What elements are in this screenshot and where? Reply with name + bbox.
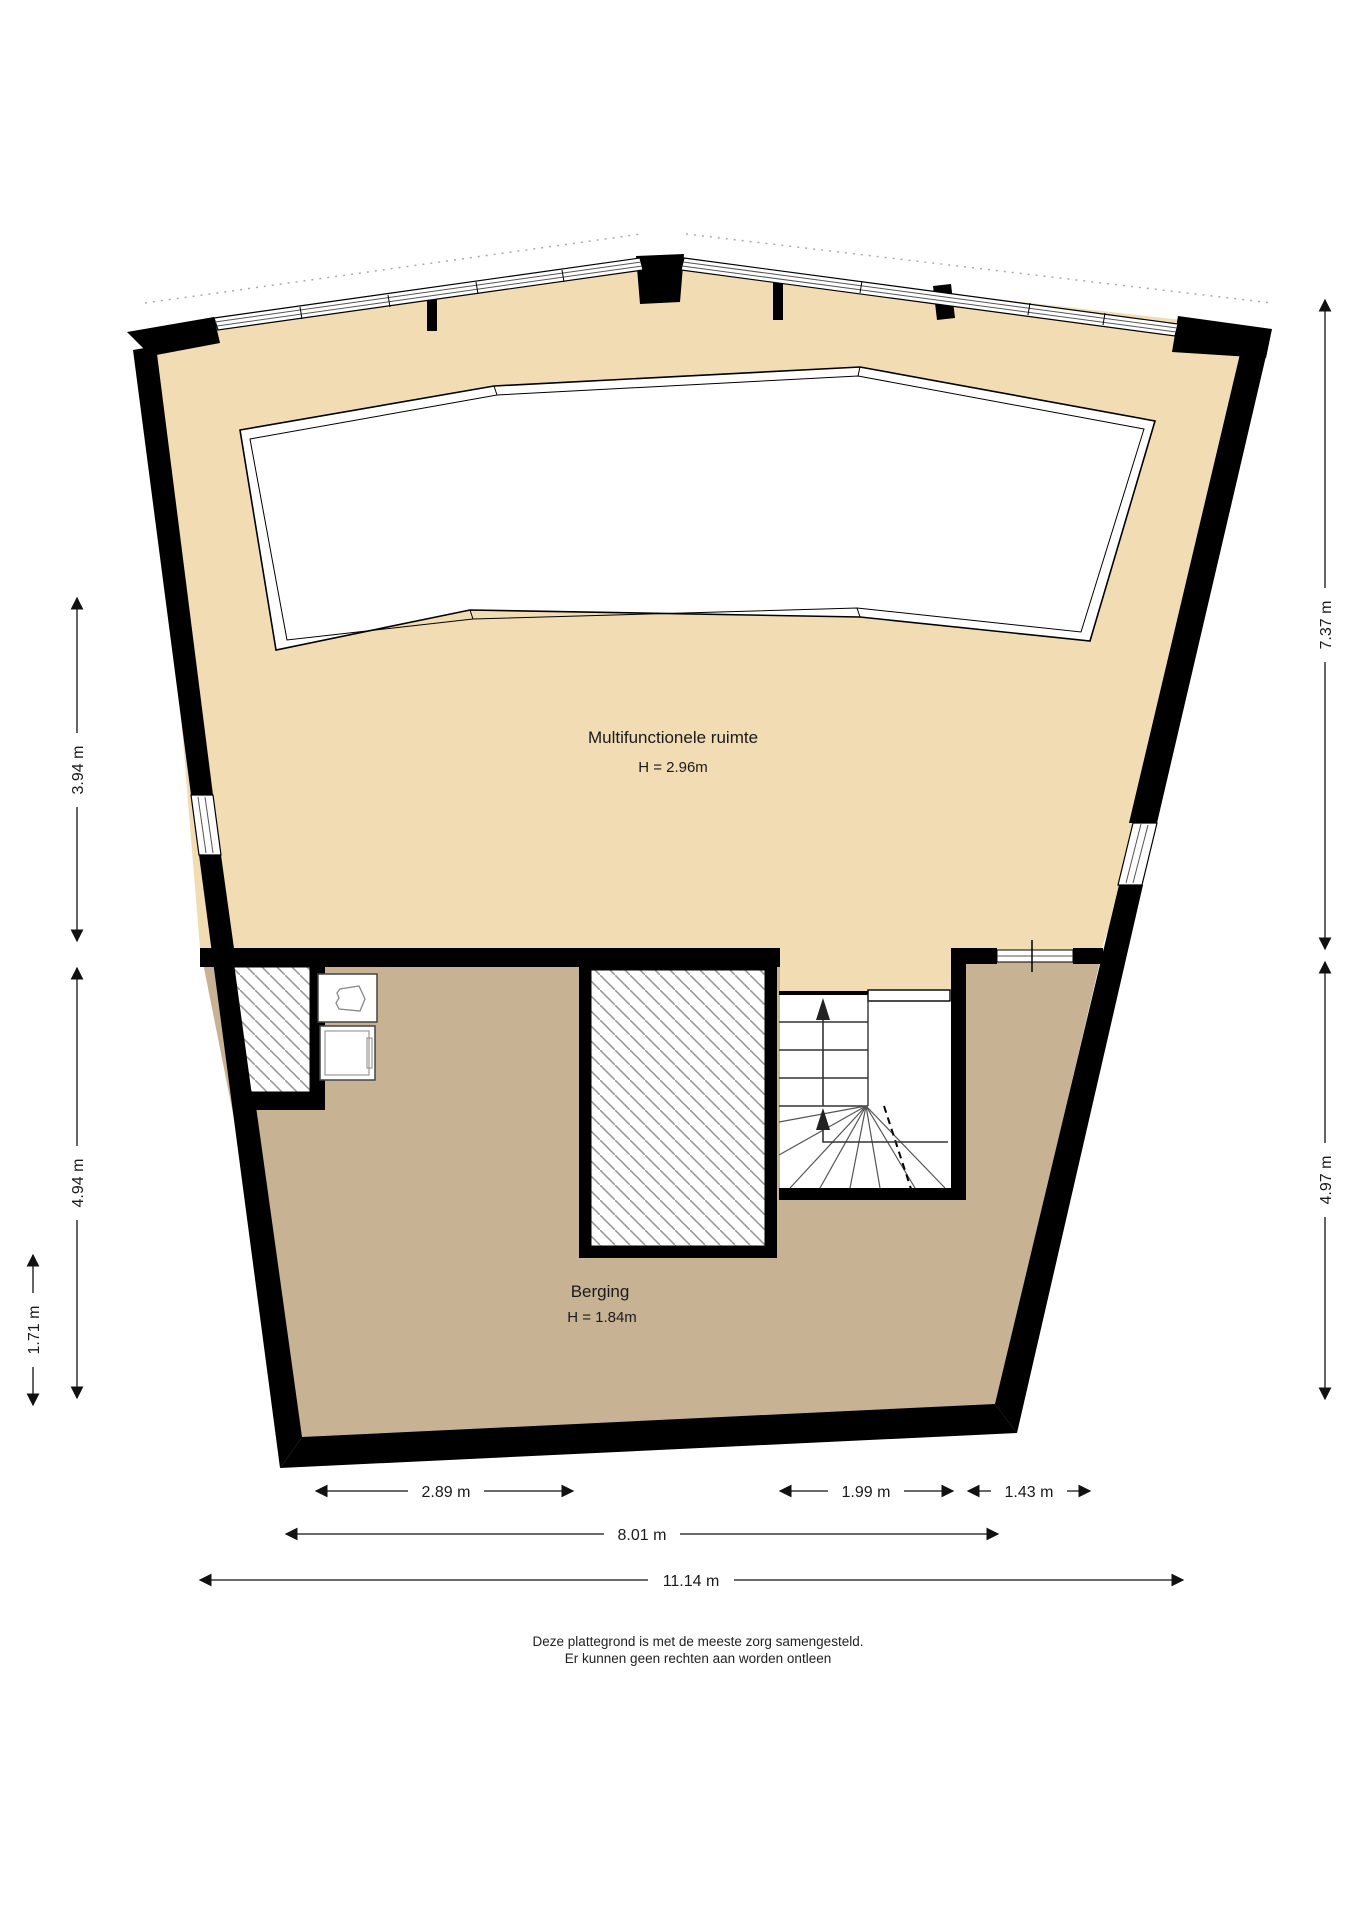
- floorplan-drawing: Multifunctionele ruimte H = 2.96m Bergin…: [0, 0, 1358, 1920]
- floorplan-page: Multifunctionele ruimte H = 2.96m Bergin…: [0, 0, 1358, 1920]
- wall-peak-block: [636, 254, 684, 304]
- dim-label: 4.94 m: [70, 1159, 87, 1208]
- void-opening: [240, 367, 1155, 650]
- wall-stub-right-band: [773, 283, 783, 320]
- room-height-multifunctional: H = 2.96m: [638, 759, 708, 776]
- dim-label: 3.94 m: [70, 746, 87, 795]
- dim-label: 8.01 m: [618, 1527, 667, 1544]
- dim-bottom-199: 1.99 m: [780, 1481, 953, 1501]
- dim-right-737: 7.37 m: [1315, 300, 1335, 949]
- staircase: [779, 990, 950, 1192]
- stair-walkline-upper: [816, 998, 830, 1106]
- appliance-fixture: [320, 1026, 375, 1080]
- stair-walkline-lower: [816, 1108, 948, 1142]
- stair-top-wall: [779, 991, 868, 995]
- dim-label: 7.37 m: [1318, 601, 1335, 650]
- dim-bottom-801: 8.01 m: [286, 1524, 998, 1544]
- toilet-room-bottom-wall: [249, 1092, 325, 1110]
- void-outer-edge: [240, 367, 1155, 650]
- dim-right-497: 4.97 m: [1315, 962, 1335, 1399]
- footer-line-2: Er kunnen geen rechten aan worden ontlee…: [565, 1651, 831, 1666]
- dim-bottom-289: 2.89 m: [316, 1481, 573, 1501]
- stair-interior-wall: [951, 948, 966, 1200]
- dim-bottom-143: 1.43 m: [968, 1481, 1090, 1501]
- hatched-void-box: [579, 958, 777, 1258]
- footer-line-1: Deze plattegrond is met de meeste zorg s…: [533, 1634, 864, 1649]
- dim-left-494: 4.94 m: [67, 968, 87, 1398]
- dim-left-171: 1.71 m: [23, 1255, 43, 1405]
- room-label-storage: Berging: [571, 1282, 630, 1301]
- dim-bottom-1114: 11.14 m: [200, 1570, 1183, 1590]
- stair-arrow-up: [816, 998, 830, 1020]
- doorway-stub-right: [1073, 948, 1103, 964]
- dim-left-394: 3.94 m: [67, 598, 87, 941]
- stair-bottom-wall: [779, 1188, 966, 1200]
- wall-corner-top-right: [1172, 316, 1272, 358]
- dim-label: 4.97 m: [1318, 1156, 1335, 1205]
- stair-winder-fan: [779, 1106, 945, 1188]
- footer-disclaimer: Deze plattegrond is met de meeste zorg s…: [533, 1634, 864, 1666]
- room-label-multifunctional: Multifunctionele ruimte: [588, 728, 758, 747]
- stair-railing-bar: [868, 990, 950, 1001]
- dim-label: 1.99 m: [842, 1484, 891, 1501]
- stair-arrow-up: [816, 1108, 830, 1130]
- dim-label: 1.71 m: [26, 1306, 43, 1355]
- sink-fixture: [318, 974, 377, 1022]
- dim-label: 11.14 m: [663, 1573, 720, 1590]
- room-height-storage: H = 1.84m: [567, 1309, 637, 1326]
- wall-stub-left-band: [427, 296, 437, 331]
- dim-label: 1.43 m: [1005, 1484, 1054, 1501]
- dim-label: 2.89 m: [422, 1484, 471, 1501]
